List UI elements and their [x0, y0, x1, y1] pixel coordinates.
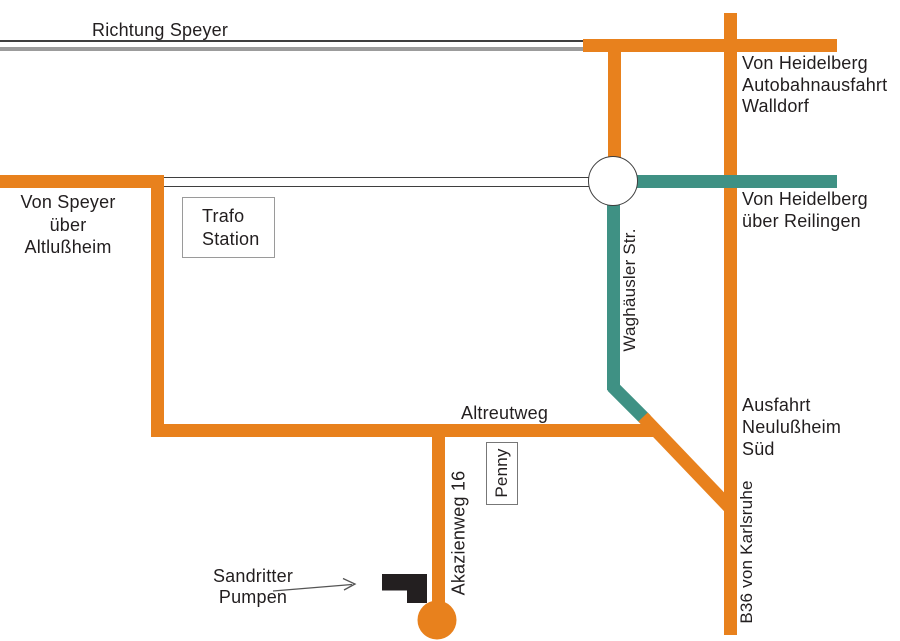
railway-mid-line-lower — [161, 186, 590, 187]
railway-mid-line-upper — [161, 177, 590, 178]
waghaeusler-str-label: Waghäusler Str. — [620, 228, 640, 351]
altreutweg-label: Altreutweg — [461, 403, 548, 425]
road-roundabout-connector — [608, 50, 621, 160]
penny-label: Penny — [492, 448, 512, 497]
road-top-horizontal — [583, 39, 837, 52]
road-waghaeusler-vertical — [607, 205, 620, 390]
road-akazienweg — [432, 436, 446, 610]
von-heidelberg-reilingen-label: Von Heidelberg über Reilingen — [742, 189, 868, 232]
road-teal-horizontal — [637, 175, 837, 188]
railway-top-line-lower — [0, 47, 583, 51]
road-orange-diagonal — [643, 417, 730, 508]
von-speyer-altlussheim-label: Von Speyer über Altlußheim — [8, 191, 128, 259]
building-marker — [382, 574, 427, 603]
richtung-speyer-label: Richtung Speyer — [92, 20, 228, 42]
route-map: Trafo Station Penny Richtung Speyer Von … — [0, 0, 900, 641]
trafo-station-box: Trafo Station — [182, 197, 275, 258]
akazienweg-16-label: Akazienweg 16 — [449, 471, 470, 596]
sandritter-pumpen-label: Sandritter Pumpen — [188, 566, 318, 607]
von-heidelberg-walldorf-label: Von Heidelberg Autobahnausfahrt Walldorf — [742, 53, 887, 118]
b36-von-karlsruhe-label: B36 von Karlsruhe — [737, 480, 757, 623]
road-b36-vertical — [724, 13, 737, 635]
railway-top-line-upper — [0, 40, 583, 42]
ausfahrt-neulussheim-label: Ausfahrt Neulußheim Süd — [742, 394, 841, 460]
pointer-arrow-head — [343, 579, 355, 591]
road-waghaeusler-diagonal — [612, 386, 646, 420]
road-left-vertical — [151, 175, 164, 436]
road-altreutweg — [151, 424, 653, 437]
roundabout-circle — [589, 157, 638, 206]
trafo-station-label: Trafo Station — [183, 198, 274, 251]
road-left-horizontal — [0, 175, 163, 188]
